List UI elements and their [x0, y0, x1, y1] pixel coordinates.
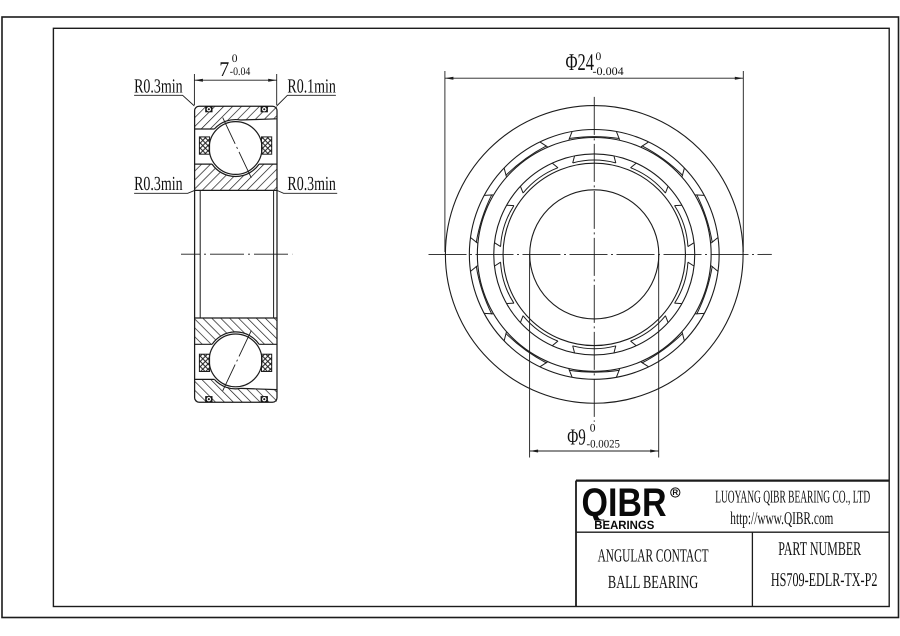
svg-text:R0.1min: R0.1min [287, 76, 336, 98]
svg-text:Φ9: Φ9 [567, 425, 586, 450]
svg-text:LUOYANG QIBR BEARING CO., LTD: LUOYANG QIBR BEARING CO., LTD [715, 487, 870, 507]
svg-text:7: 7 [219, 57, 229, 81]
svg-text:R0.3min: R0.3min [134, 173, 183, 195]
svg-text:R: R [672, 488, 678, 497]
svg-text:ANGULAR CONTACT: ANGULAR CONTACT [598, 547, 709, 567]
svg-text:R0.3min: R0.3min [134, 76, 183, 98]
svg-text:PART NUMBER: PART NUMBER [778, 539, 861, 560]
svg-text:0: 0 [596, 51, 602, 63]
svg-text:BEARINGS: BEARINGS [594, 518, 654, 532]
svg-text:-0.04: -0.04 [230, 66, 251, 78]
svg-text:-0.0025: -0.0025 [587, 439, 621, 451]
svg-text:0: 0 [232, 53, 238, 65]
svg-text:R0.3min: R0.3min [287, 173, 336, 195]
svg-text:BALL BEARING: BALL BEARING [608, 573, 698, 593]
svg-text:-0.004: -0.004 [593, 66, 624, 78]
svg-text:0: 0 [590, 423, 596, 435]
svg-text:http://www.QIBR.com: http://www.QIBR.com [730, 508, 833, 528]
svg-text:HS709-EDLR-TX-P2: HS709-EDLR-TX-P2 [771, 570, 878, 591]
svg-text:Φ24: Φ24 [566, 50, 595, 76]
